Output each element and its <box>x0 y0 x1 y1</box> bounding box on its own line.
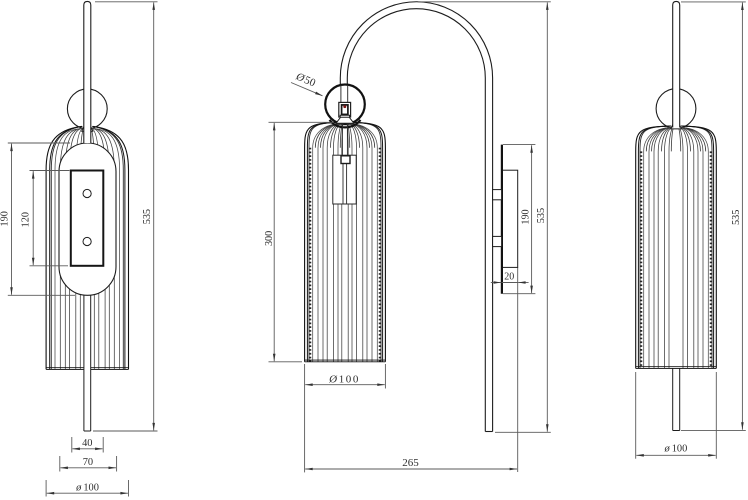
svg-text:40: 40 <box>82 438 92 449</box>
svg-text:ø 100: ø 100 <box>663 444 687 455</box>
svg-text:70: 70 <box>83 457 93 468</box>
svg-text:190: 190 <box>521 209 532 224</box>
svg-text:300: 300 <box>264 231 275 246</box>
svg-text:120: 120 <box>21 212 32 227</box>
svg-text:190: 190 <box>0 211 11 226</box>
svg-text:ø 100: ø 100 <box>75 482 99 493</box>
svg-text:535: 535 <box>536 208 547 223</box>
svg-text:20: 20 <box>504 271 514 282</box>
svg-text:535: 535 <box>731 210 742 225</box>
svg-text:265: 265 <box>402 457 419 469</box>
svg-text:535: 535 <box>142 209 153 224</box>
svg-text:Ø100: Ø100 <box>328 373 360 385</box>
